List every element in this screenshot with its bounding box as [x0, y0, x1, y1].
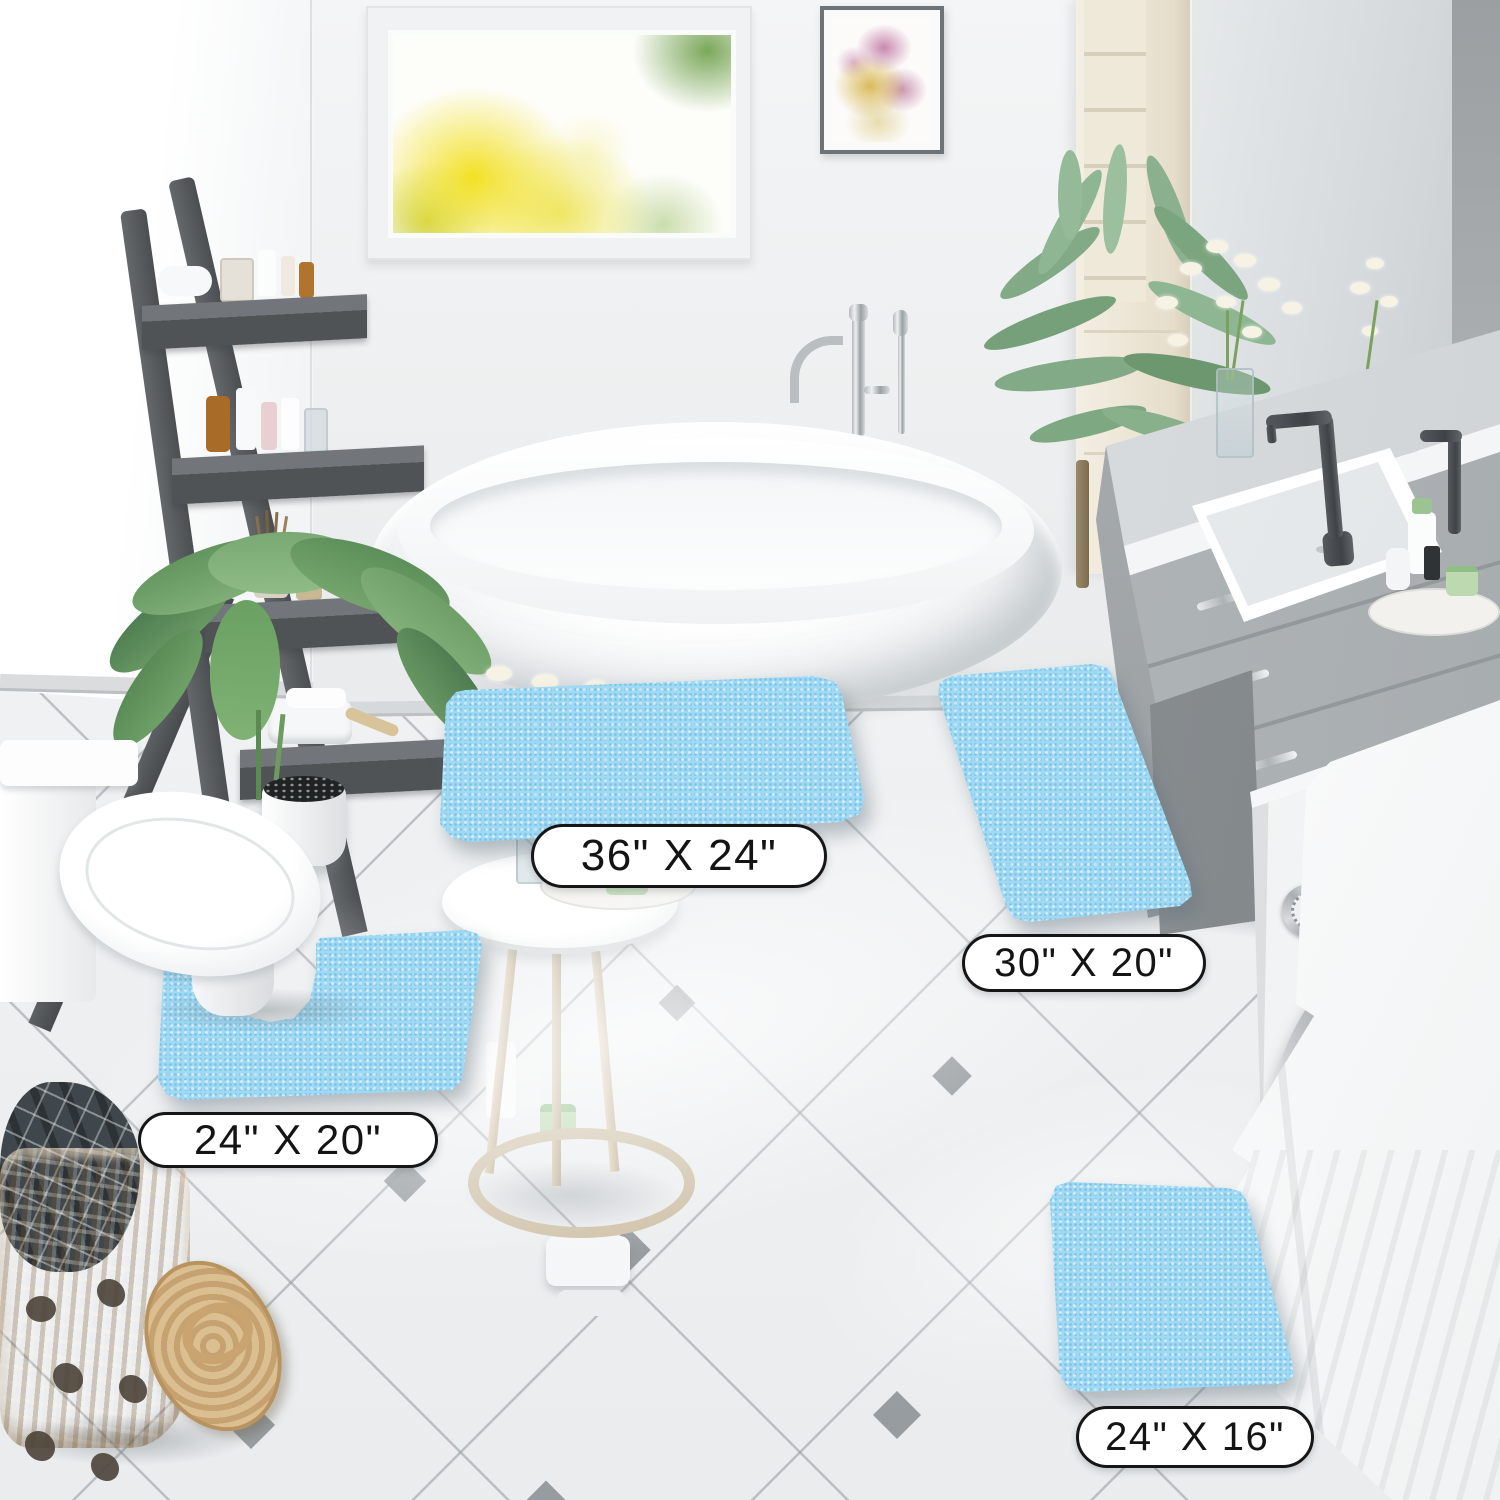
- size-label-36x24: 36" X 24": [531, 824, 827, 888]
- size-label-24x20: 24" X 20": [138, 1112, 438, 1168]
- toilet: [0, 720, 360, 1040]
- size-label-30x20-text: 30" X 20": [994, 941, 1174, 986]
- size-label-30x20: 30" X 20": [962, 934, 1206, 992]
- size-label-36x24-text: 36" X 24": [581, 831, 777, 881]
- toilet-tank-lid: [0, 740, 138, 786]
- size-label-24x16: 24" X 16": [1076, 1406, 1314, 1468]
- size-label-24x16-text: 24" X 16": [1105, 1415, 1285, 1460]
- bathroom-scene: 36" X 24" 30" X 20" 24" X 20" 24" X 16": [0, 0, 1500, 1500]
- size-label-24x20-text: 24" X 20": [194, 1116, 382, 1164]
